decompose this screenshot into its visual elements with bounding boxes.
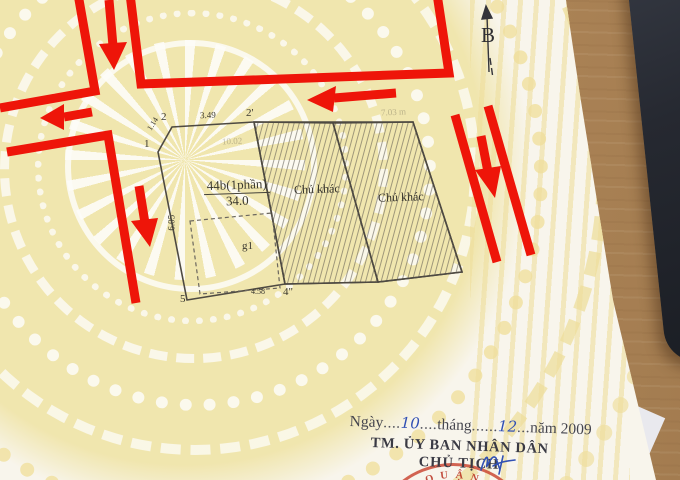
faint-note-mid: 10.02: [222, 136, 243, 146]
red-road-topleft: [0, 0, 95, 108]
faint-note-topright: 7.03 m: [381, 107, 406, 118]
corner-label-5: 5: [180, 294, 186, 306]
other-owner-label-left: Chủ khác: [294, 182, 340, 196]
red-arrow-left-2-shaft: [334, 93, 396, 98]
handwritten-day: 10: [400, 414, 420, 433]
corner-label-2: 2: [161, 112, 167, 124]
red-road-top: [130, 0, 449, 84]
date-word-day: Ngày: [349, 413, 383, 431]
corner-label-2prime: 2': [246, 108, 253, 120]
date-word-year: năm 2009: [530, 419, 592, 438]
corner-label-4: 4": [283, 287, 293, 299]
parcel-label: 44b(1phần) 34.0: [194, 177, 281, 209]
date-word-month: tháng: [437, 416, 472, 434]
handwritten-month: 12: [498, 417, 518, 436]
parcel-area: 34.0: [226, 192, 249, 208]
measurement-bottom: 4.58: [251, 288, 265, 296]
measurement-top: 3.49: [200, 111, 216, 121]
measurement-left: 6.05: [167, 206, 176, 240]
dashed-subplot-g1: [190, 213, 280, 294]
signature-squiggle: [475, 448, 521, 480]
red-arrow-left-1-shaft: [64, 112, 92, 117]
subplot-label-g1: g1: [242, 241, 253, 253]
corner-label-1: 1: [144, 139, 150, 151]
red-road-left: [7, 135, 136, 303]
red-arrow-down-1-shaft: [109, 0, 113, 46]
red-arrow-down-3-shaft: [481, 136, 488, 172]
red-arrow-down-2-shaft: [139, 186, 145, 223]
other-owner-label-right: Chủ khác: [378, 190, 424, 204]
red-arrow-left-2-head: [307, 86, 336, 112]
red-arrow-down-1-head: [99, 42, 127, 70]
parcel-outline: [158, 122, 462, 300]
north-label: B: [481, 24, 495, 46]
red-arrow-down-2-head: [131, 218, 158, 247]
photo-of-document: B 1 2 2' 4" 5 3.49 1.14 6.05 4.58 7.03 m…: [0, 0, 680, 480]
red-arrow-left-1-head: [40, 104, 64, 130]
